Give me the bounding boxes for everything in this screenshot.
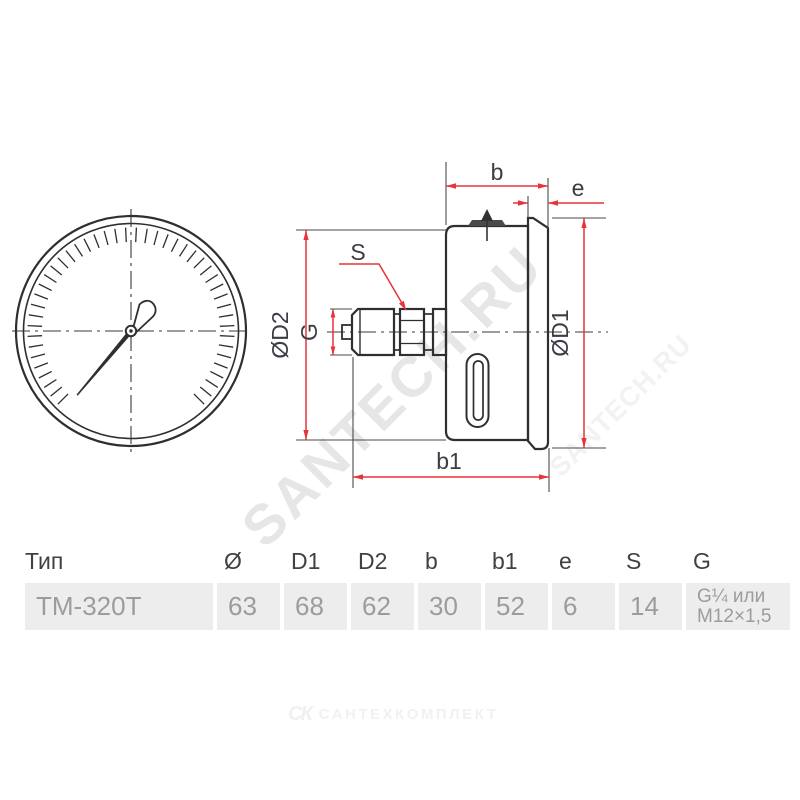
case-body [446,226,528,440]
gauge-side-view: b e ØD2 G ØD1 [267,159,608,492]
mounting-slot-outer [467,354,489,427]
dimensions: b e ØD2 G ØD1 [267,159,604,480]
col-header-g: G [686,548,790,574]
dim-d2-arrow-top [303,230,308,240]
cell-g-line1: G¼ или [697,587,765,607]
dim-d2-arrow-bottom [303,430,308,440]
page: SANTECH.RU SANTECH.RU [0,0,800,800]
dim-b-arrow-left [446,183,456,188]
mounting-slot-inner [474,361,484,420]
col-header-tip: Тип [25,548,213,574]
gauge-needle [77,330,133,396]
dim-e-arrow-right [548,200,558,205]
gauge-front-view [12,209,250,455]
cell-g: G¼ или M12×1,5 [686,583,790,630]
cell-s: 14 [619,583,682,630]
cell-d1: 68 [284,583,347,630]
dim-s-leader [339,264,406,310]
dim-b1-arrow-left [353,474,363,479]
col-header-b: b [418,548,481,574]
dim-b1-label: b1 [436,448,462,474]
santehkomplekt-logo-text: САНТЕХКОМПЛЕКТ [319,706,499,723]
spec-table-header-row: Тип Ø D1 D2 b b1 e S G [25,548,791,574]
col-header-d2: D2 [351,548,414,574]
cell-b1: 52 [485,583,548,630]
col-header-e: e [552,548,615,574]
vent-arrow-icon [481,209,493,221]
gauge-needle-counterweight [133,301,156,332]
col-header-o: Ø [217,548,280,574]
cell-g-line2: M12×1,5 [697,607,771,627]
footer-logo: СК САНТЕХКОМПЛЕКТ [288,703,498,726]
spec-table-data-row: ТМ-320Т 63 68 62 30 52 6 14 G¼ или M12×1… [25,583,791,630]
cell-b: 30 [418,583,481,630]
dim-g-arrow-top [331,309,336,318]
dim-d1-arrow-bottom [581,438,586,448]
dim-d1-arrow-top [581,218,586,228]
santehkomplekt-logo-icon: СК [288,703,311,726]
dim-d1-label: ØD1 [547,309,573,356]
front-bezel [528,218,548,449]
dim-e-arrow-left [518,200,528,205]
col-header-d1: D1 [284,548,347,574]
dim-g-arrow-bottom [331,347,336,356]
spec-table: Тип Ø D1 D2 b b1 e S G ТМ-320Т 63 68 62 … [25,548,791,630]
col-header-s: S [619,548,682,574]
dim-s-label: S [350,239,365,265]
col-header-b1: b1 [485,548,548,574]
dim-b1-arrow-right [539,474,549,479]
dim-b-label: b [491,159,504,185]
cell-tip: ТМ-320Т [25,583,213,630]
technical-drawing: b e ØD2 G ØD1 [0,0,800,800]
cell-d2: 62 [351,583,414,630]
cell-e: 6 [552,583,615,630]
dim-b-arrow-right [538,183,548,188]
dim-e-label: e [572,175,585,201]
dim-d2-label: ØD2 [267,311,293,358]
dim-g-label: G [296,323,322,341]
gauge-hub-pin [129,329,132,332]
cell-o: 63 [217,583,280,630]
